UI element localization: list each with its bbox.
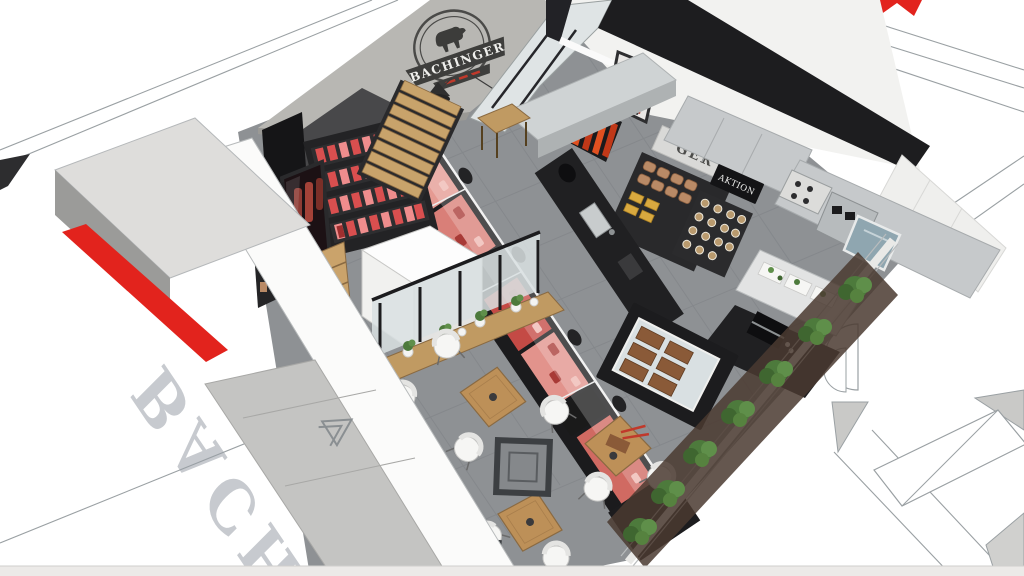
shop-3d-render: BACHINGER AKTIO	[0, 0, 1024, 576]
doormat	[496, 440, 550, 494]
render-viewport: BACHINGER AKTIO	[0, 0, 1024, 576]
bottom-strip	[0, 566, 1024, 576]
